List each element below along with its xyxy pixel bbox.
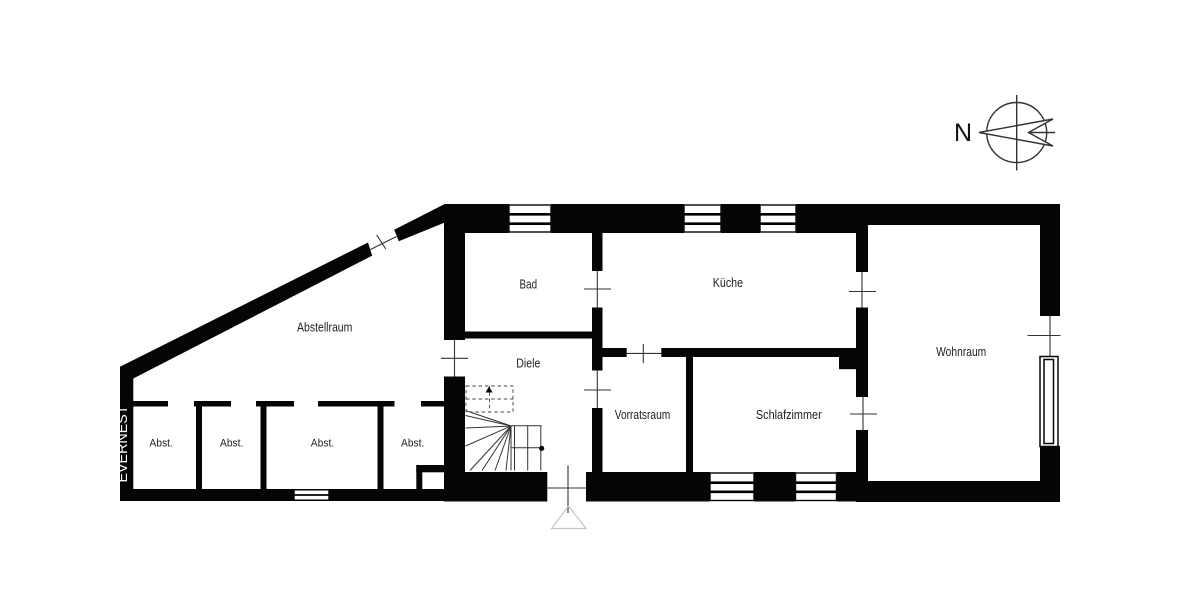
svg-text:Abst.: Abst. xyxy=(311,438,334,450)
svg-text:N: N xyxy=(954,119,972,147)
svg-text:Wohnraum: Wohnraum xyxy=(936,344,986,359)
svg-text:Küche: Küche xyxy=(713,275,743,290)
svg-text:Bad: Bad xyxy=(520,276,538,291)
svg-text:Schlafzimmer: Schlafzimmer xyxy=(756,407,822,422)
svg-text:Abst.: Abst. xyxy=(149,438,172,450)
svg-text:Abst.: Abst. xyxy=(401,438,424,450)
svg-text:Vorratsraum: Vorratsraum xyxy=(615,407,671,422)
svg-text:Diele: Diele xyxy=(516,356,540,371)
svg-text:Abst.: Abst. xyxy=(220,438,243,450)
svg-text:EVERNEST: EVERNEST xyxy=(114,406,131,483)
svg-text:Abstellraum: Abstellraum xyxy=(297,319,352,334)
